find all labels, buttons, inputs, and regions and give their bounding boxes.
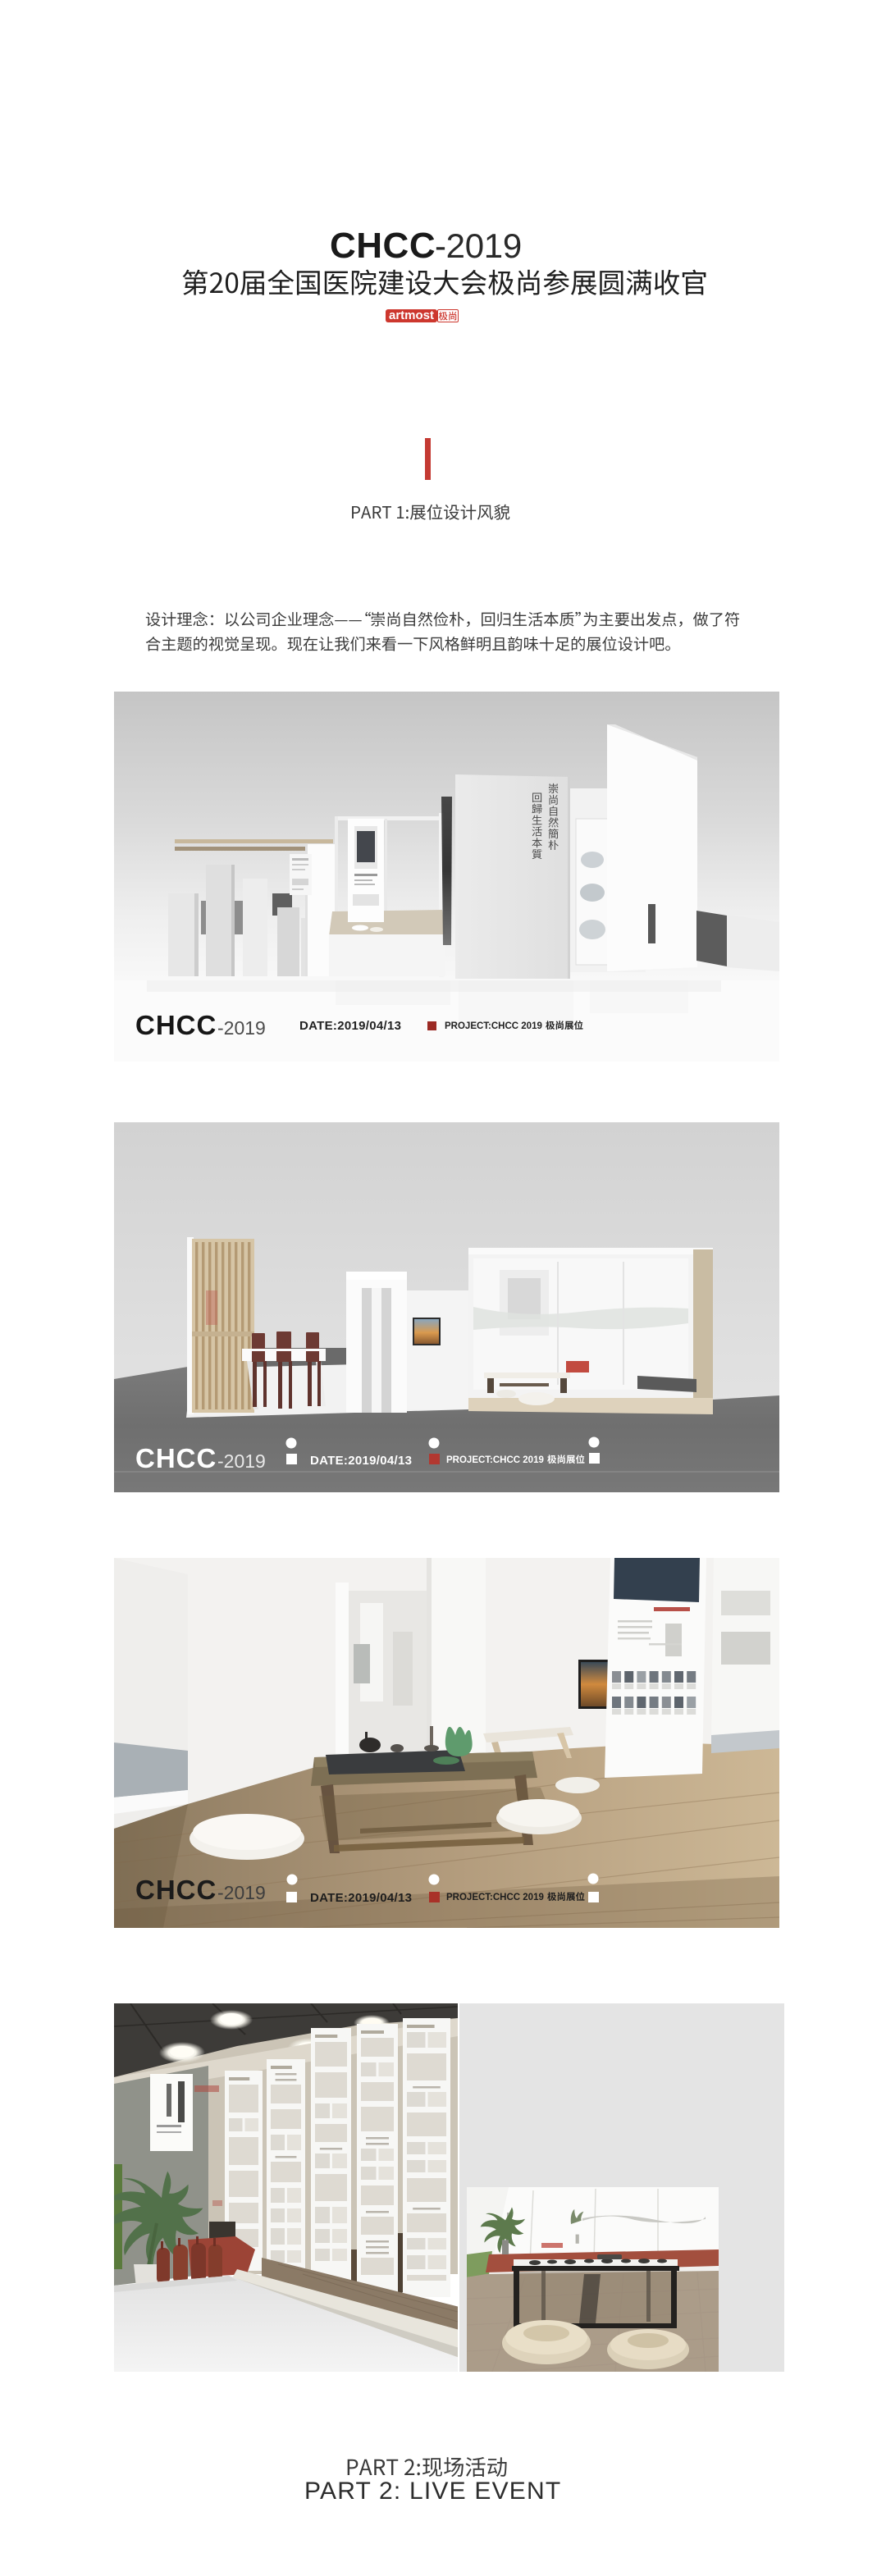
- svg-text:-2019: -2019: [217, 1017, 266, 1039]
- svg-text:-2019: -2019: [217, 1450, 266, 1472]
- svg-text:PROJECT:CHCC 2019: PROJECT:CHCC 2019: [445, 1021, 542, 1031]
- svg-text:DATE:2019/04/13: DATE:2019/04/13: [310, 1891, 412, 1905]
- svg-text:PART 2: LIVE EVENT: PART 2: LIVE EVENT: [304, 2478, 561, 2505]
- svg-text:PROJECT:CHCC 2019: PROJECT:CHCC 2019: [446, 1455, 544, 1465]
- svg-text:DATE:2019/04/13: DATE:2019/04/13: [299, 1019, 401, 1033]
- svg-text:PROJECT:CHCC 2019: PROJECT:CHCC 2019: [446, 1893, 544, 1902]
- svg-text:CHCC: CHCC: [135, 1443, 217, 1473]
- svg-text:CHCC: CHCC: [135, 1875, 217, 1905]
- svg-text:CHCC: CHCC: [135, 1010, 217, 1040]
- svg-text:-2019: -2019: [217, 1882, 266, 1903]
- svg-text:DATE:2019/04/13: DATE:2019/04/13: [310, 1454, 412, 1468]
